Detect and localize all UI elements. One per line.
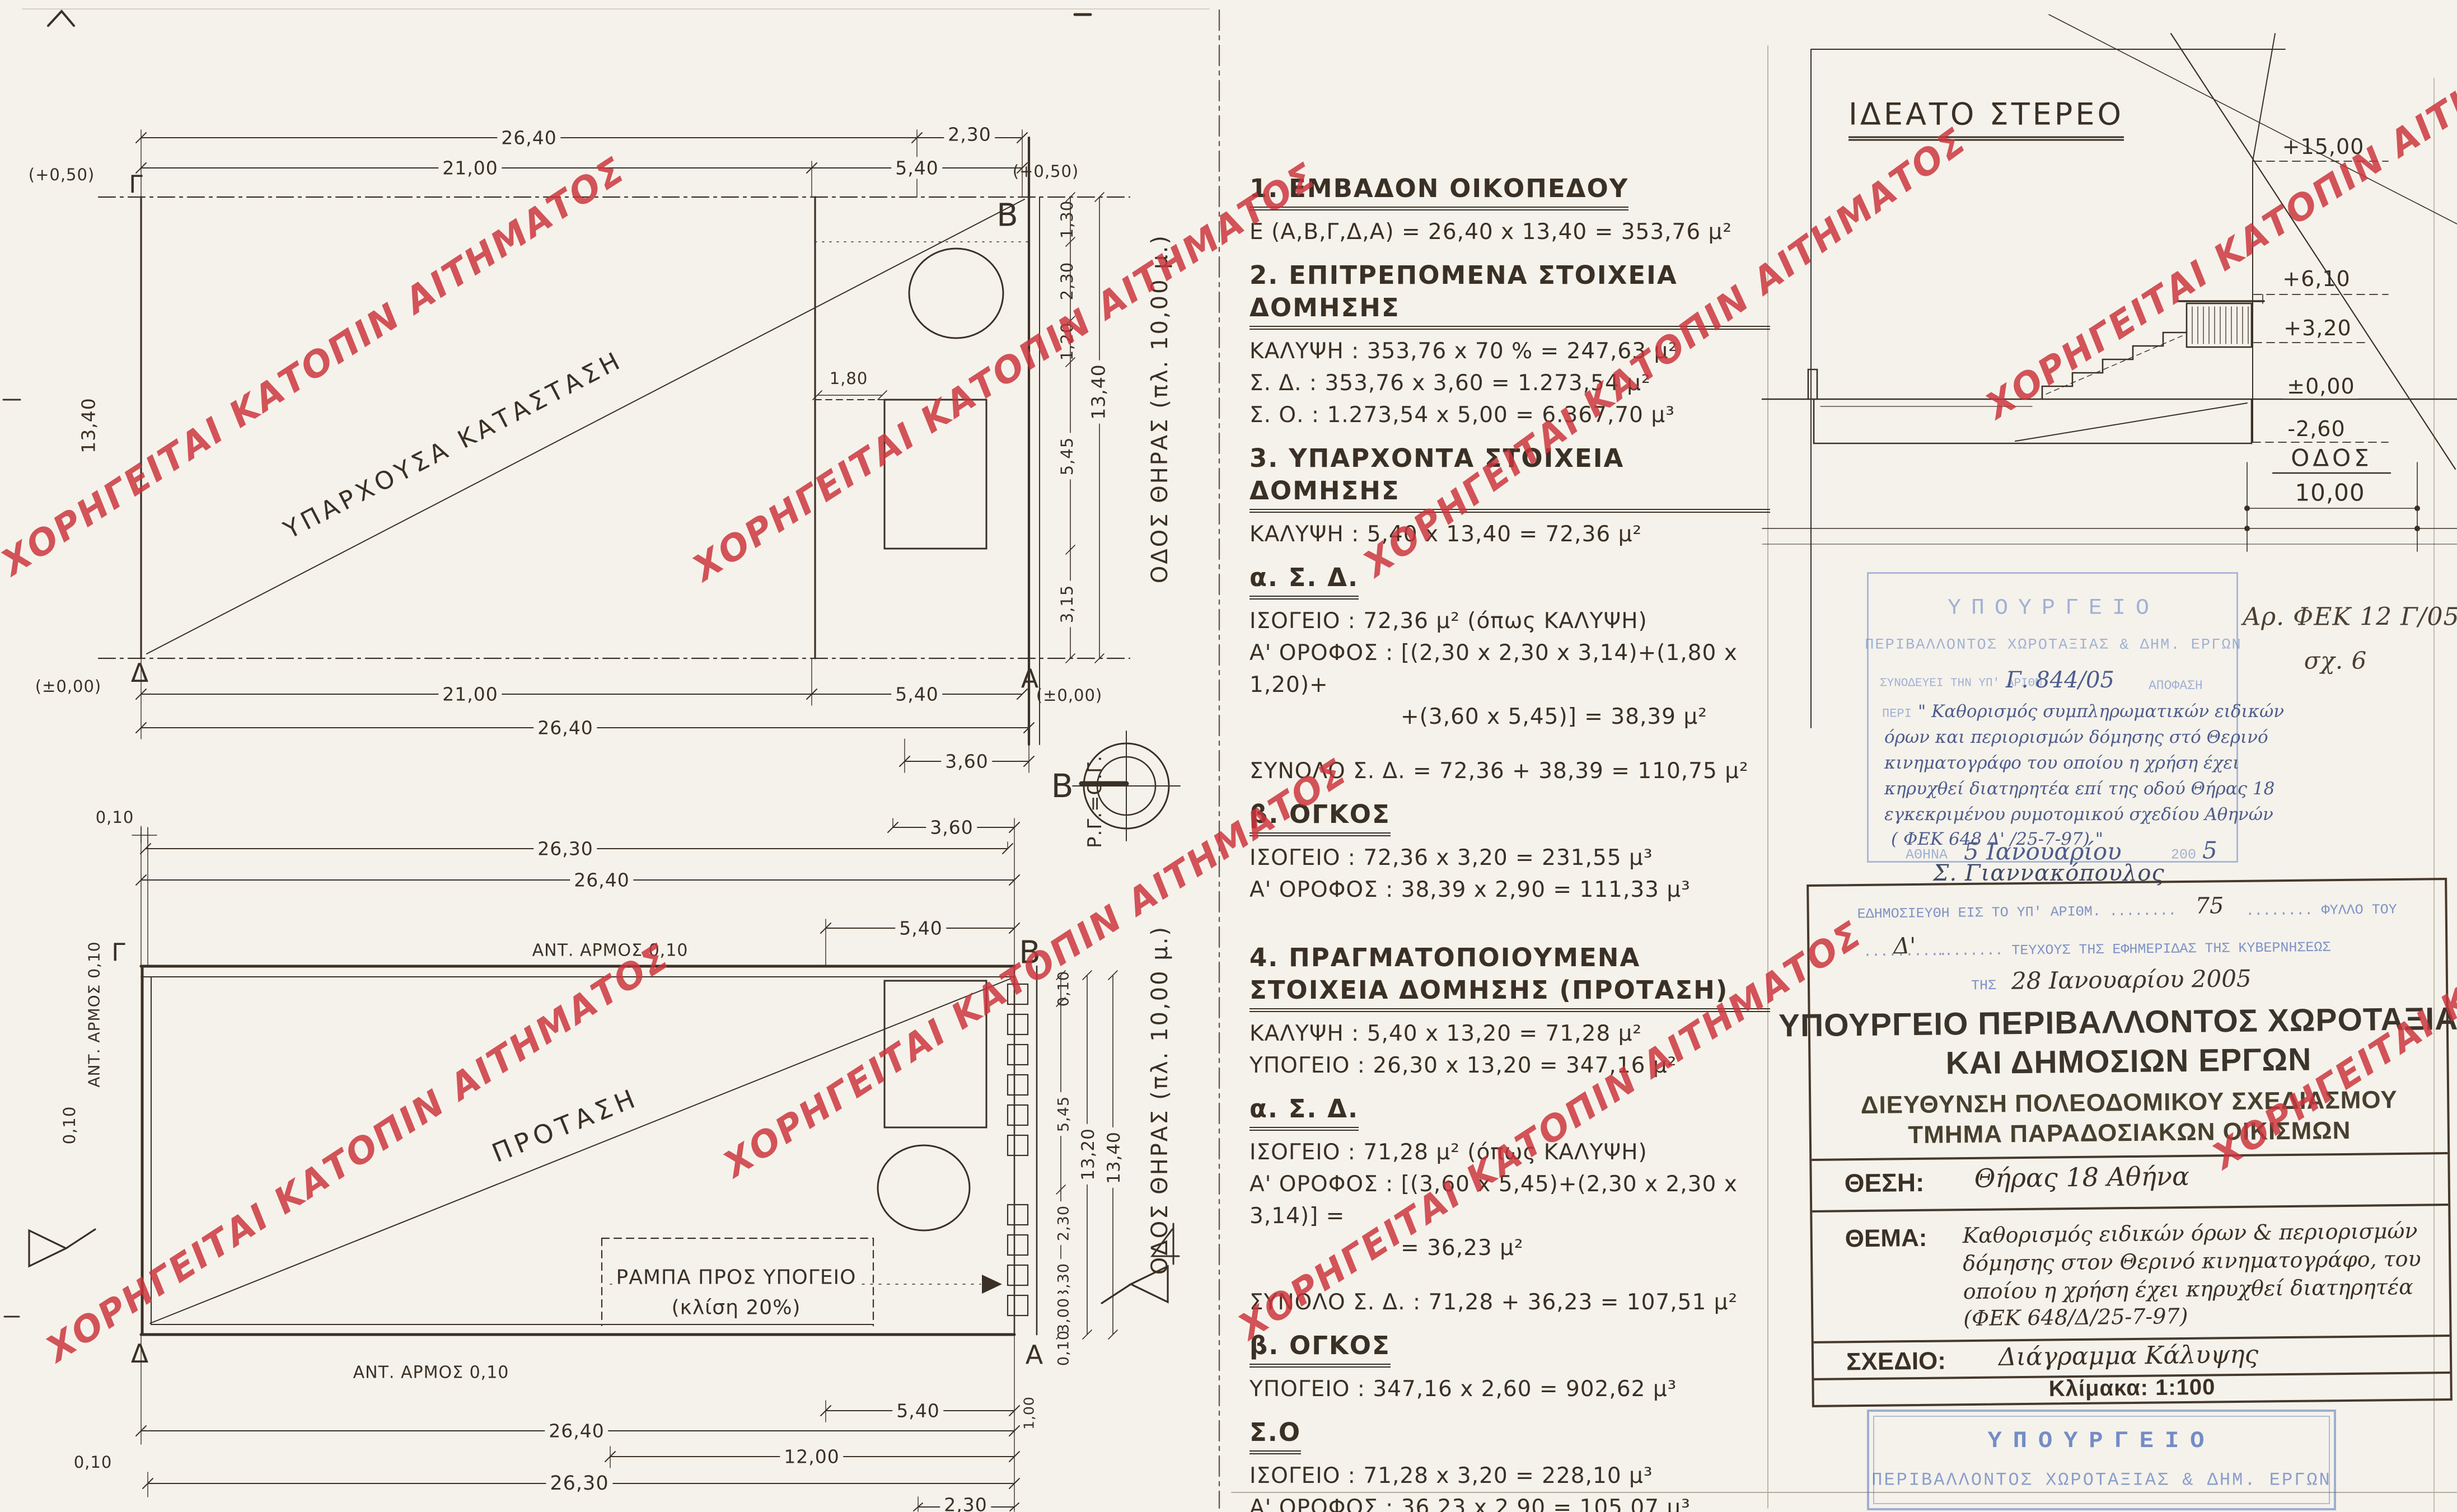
calc-line: ΙΣΟΓΕΙΟ : 72,36 x 3,20 = 231,55 μ³	[1249, 842, 1770, 874]
calc-line: ΚΑΛΥΨΗ : 353,76 x 70 % = 247,63 μ²	[1249, 335, 1770, 367]
opening-square	[1008, 984, 1028, 1004]
dim-label: 3,15	[1057, 581, 1077, 628]
approval-stamp: ΥΠΟΥΡΓΕΙΟ ΠΕΡΙΒΑΛΛΟΝΤΟΣ ΧΩΡΟΤΑΞΙΑΣ & ΔΗΜ…	[1867, 572, 2238, 863]
proposal-diagonal	[150, 979, 1011, 1323]
dim-label: 5,40	[895, 918, 946, 939]
stamp-year-pre: 200	[2171, 847, 2196, 863]
stamp-header2: ΠΕΡΙΒΑΛΛΟΝΤΟΣ ΧΩΡΟΤΑΞΙΑΣ & ΔΗΜ. ΕΡΓΩΝ	[1865, 637, 2242, 654]
small-dim	[132, 827, 157, 843]
ref-copy: σχ. 6	[2304, 647, 2367, 675]
corner-label: Β	[1019, 935, 1041, 971]
booth	[2187, 303, 2252, 347]
calc-line: ΚΑΛΥΨΗ : 5,40 x 13,20 = 71,28 μ²	[1249, 1018, 1770, 1050]
ramp-slope-label: (κλίση 20%)	[668, 1296, 805, 1319]
calc-line: Σ. Δ. : 353,76 x 3,60 = 1.273,54 μ²	[1249, 367, 1770, 399]
pub-line1-post: ........ ΦΥΛΛΟ ΤΟΥ	[2246, 901, 2397, 919]
opening-square	[1008, 1295, 1028, 1316]
opening-square	[1008, 1014, 1028, 1034]
department: ΤΜΗΜΑ ΠΑΡΑΔΟΣΙΑΚΩΝ ΟΙΚΙΣΜΩΝ	[1908, 1117, 2351, 1149]
calc-section: 4. ΠΡΑΓΜΑΤΟΠΟΙΟΥΜΕΝΑ ΣΤΟΙΧΕΙΑ ΔΟΜΗΣΗΣ (Π…	[1249, 942, 1770, 1082]
calc-heading: β. ΟΓΚΟΣ	[1249, 798, 1391, 836]
dim-label: 0,10	[74, 1453, 113, 1472]
dim-label: 5,40	[892, 1400, 943, 1422]
opening-square	[1008, 1105, 1028, 1125]
calc-line: = 36,23 μ²	[1401, 1232, 1770, 1264]
thema-line: (ΦΕΚ 648/Δ/25-7-97)	[1963, 1304, 2188, 1331]
calc-line: Α' ΟΡΟΦΟΣ : [(3,60 x 5,45)+(2,30 x 2,30 …	[1249, 1168, 1770, 1232]
calc-line: Α' ΟΡΟΦΟΣ : [(2,30 x 2,30 x 3,14)+(1,80 …	[1249, 637, 1770, 701]
ideal-solid-title: ΙΔΕΑΤΟ ΣΤΕΡΕΟ	[1848, 97, 2124, 141]
corner-label: Β	[996, 198, 1018, 234]
calc-line: Α' ΟΡΟΦΟΣ : 36,23 x 2,90 = 105,07 μ³	[1249, 1492, 1770, 1512]
dim-label: 13,40	[1088, 360, 1110, 423]
dim-interior	[813, 391, 887, 400]
stamp-subject-line: εγκεκριμένου ρυμοτομικού σχεδίου Αθηνών	[1884, 804, 2273, 825]
dim-label: 5,40	[891, 684, 942, 705]
dim-label: 2,30	[1055, 1201, 1073, 1245]
thesi-label: ΘΕΣΗ:	[1844, 1167, 1924, 1198]
level-label: (±0,00)	[35, 677, 102, 696]
dim-label: 26,40	[545, 1420, 608, 1442]
dim-label: 5,45	[1057, 433, 1077, 480]
stamp-subject-line: κινηματογράφο του οποίου η χρήση έχει	[1884, 753, 2239, 773]
dim-label: 5,45	[1055, 1092, 1073, 1136]
calc-line: ΙΣΟΓΕΙΟ : 71,28 x 3,20 = 228,10 μ³	[1249, 1460, 1770, 1492]
joint-label-top: ΑΝΤ. ΑΡΜΟΣ 0,10	[528, 941, 692, 961]
level-label: (+0,50)	[29, 165, 95, 184]
basement-ramp	[2015, 403, 2247, 441]
pub-line3-pre: ΤΗΣ	[1971, 977, 1996, 994]
pub-line2: ........ ΤΕΥΧΟΥΣ ΤΗΣ ΕΦΗΜΕΡΙΔΑΣ ΤΗΣ ΚΥΒΕ…	[1936, 939, 2330, 959]
calc-heading: 2. ΕΠΙΤΡΕΠΟΜΕΝΑ ΣΤΟΙΧΕΙΑ ΔΟΜΗΣΗΣ	[1249, 259, 1770, 330]
dim-label: 3,60	[941, 751, 992, 773]
dim-label: 3,60	[926, 817, 977, 839]
extension-lines	[141, 658, 1029, 773]
corner-label: Δ	[131, 658, 149, 688]
calc-heading: 4. ΠΡΑΓΜΑΤΟΠΟΙΟΥΜΕΝΑ ΣΤΟΙΧΕΙΑ ΔΟΜΗΣΗΣ (Π…	[1249, 942, 1770, 1012]
stamp-subject-line: όρων και περιορισμών δόμησης στό Θερινό	[1884, 727, 2268, 747]
schedio-label: ΣΧΕΔΙΟ:	[1846, 1347, 1946, 1376]
calc-section: 1. ΕΜΒΑΔΟΝ ΟΙΚΟΠΕΔΟΥΕ (Α,Β,Γ,Δ,Α) = 26,4…	[1249, 172, 1770, 248]
plan-proposal-lines	[29, 818, 1179, 1511]
projection-circle	[878, 1145, 970, 1230]
stamp-subject-line: " Καθορισμός συμπληρωματικών ειδικών	[1918, 701, 2284, 722]
corner-label: Γ	[129, 171, 143, 199]
rule	[1812, 1152, 2447, 1161]
dim-label: 2,30	[1057, 262, 1077, 301]
opening-square	[1008, 1265, 1028, 1285]
dim-label: 1,20	[1057, 322, 1077, 361]
scale-label: Κλίμακα: 1:100	[2049, 1375, 2216, 1402]
calc-line: Α' ΟΡΟΦΟΣ : 38,39 x 2,90 = 111,33 μ³	[1249, 874, 1770, 906]
dim-label: 0,10	[96, 808, 134, 827]
stamp-year: 5	[2202, 837, 2217, 864]
dim-label: 2,30	[940, 1494, 991, 1512]
stamp-header: ΥΠΟΥΡΓΕΙΟ	[1948, 596, 2159, 621]
booth-hatch	[2192, 307, 2248, 344]
north-letter: Β	[1051, 767, 1074, 805]
level-label: ±0,00	[2283, 374, 2358, 399]
pub-line1-pre: ΕΔΗΜΟΣΙΕΥΘΗ ΕΙΣ ΤΟ ΥΠ' ΑΡΙΘΜ. ........	[1857, 903, 2177, 923]
dim-label: 13,40	[78, 394, 100, 457]
dim-label: 1,30	[1057, 200, 1077, 239]
basement	[1814, 399, 2252, 443]
calc-heading: α. Σ. Δ.	[1249, 1093, 1359, 1131]
ministry-title-line1: ΥΠΟΥΡΓΕΙΟ ΠΕΡΙΒΑΛΛΟΝΤΟΣ ΧΩΡΟΤΑΞΙΑΣ	[1779, 1000, 2457, 1044]
level-label: +6,10	[2282, 266, 2350, 291]
dim-label: 21,00	[438, 684, 502, 705]
calc-line: Ε (Α,Β,Γ,Δ,Α) = 26,40 x 13,40 = 353,76 μ…	[1249, 216, 1770, 248]
calc-line: ΥΠΟΓΕΙΟ : 347,16 x 2,60 = 902,62 μ³	[1249, 1373, 1770, 1405]
thema-line: Καθορισμός ειδικών όρων & περιορισμών	[1962, 1219, 2417, 1248]
extension-lines	[141, 130, 1022, 197]
calc-section: β. ΟΓΚΟΣΙΣΟΓΕΙΟ : 72,36 x 3,20 = 231,55 …	[1249, 798, 1770, 906]
dim-label: 5,40	[891, 157, 942, 179]
dim-label: 12,00	[780, 1446, 843, 1468]
ref-number: Αρ. ΦΕΚ 12 Γ/05	[2243, 603, 2457, 631]
ramp-label: ΡΑΜΠΑ ΠΡΟΣ ΥΠΟΓΕΙΟ	[612, 1266, 860, 1289]
calc-heading: β. ΟΓΚΟΣ	[1249, 1330, 1391, 1368]
calc-line: ΚΑΛΥΨΗ : 5,40 x 13,40 = 72,36 μ²	[1249, 518, 1770, 550]
calc-line: ΣΥΝΟΛΟ Σ. Δ. : 71,28 + 36,23 = 107,51 μ²	[1249, 1286, 1770, 1318]
calc-section: 3. ΥΠΑΡΧΟΝΤΑ ΣΤΟΙΧΕΙΑ ΔΟΜΗΣΗΣΚΑΛΥΨΗ : 5,…	[1249, 442, 1770, 550]
calc-column: 1. ΕΜΒΑΔΟΝ ΟΙΚΟΠΕΔΟΥΕ (Α,Β,Γ,Δ,Α) = 26,4…	[1249, 172, 1770, 1512]
rule	[1812, 1204, 2448, 1213]
calc-section: α. Σ. Δ.ΙΣΟΓΕΙΟ : 72,36 μ² (όπως ΚΑΛΥΨΗ)…	[1249, 561, 1770, 787]
dim-label: 26,40	[570, 869, 633, 891]
right-dim-total	[1095, 193, 1104, 663]
street-label: ΟΔΟΣ ΘΗΡΑΣ (πλ. 10,00 μ.)	[1147, 234, 1173, 583]
calc-line: +(3,60 x 5,45)] = 38,39 μ²	[1401, 701, 1770, 733]
pub-date: 28 Ιανουαρίου 2005	[2011, 965, 2252, 994]
corner-label: Δ	[131, 1338, 149, 1369]
calc-line: Σ. Ο. : 1.273,54 x 5,00 = 6.367,70 μ³	[1249, 399, 1770, 431]
plan-existing-lines	[99, 130, 1130, 773]
ministry-stamp-line2: ΠΕΡΙΒΑΛΛΟΝΤΟΣ ΧΩΡΟΤΑΞΙΑΣ & ΔΗΜ. ΕΡΓΩΝ	[1871, 1470, 2332, 1491]
edge-tick	[3, 400, 20, 1317]
joint-label-left: ΑΝΤ. ΑΡΜΟΣ 0,10	[85, 941, 104, 1087]
calc-section: β. ΟΓΚΟΣΥΠΟΓΕΙΟ : 347,16 x 2,60 = 902,62…	[1249, 1330, 1770, 1405]
opening-square	[1008, 1235, 1028, 1255]
corner-label: Α	[1026, 1340, 1043, 1370]
rg-og-label: Ρ.Γ.=Ο.Γ.	[1084, 755, 1106, 848]
projection-circle	[909, 249, 1003, 338]
dim-label: 26,30	[546, 1472, 612, 1495]
level-label: (±0,00)	[1036, 686, 1103, 705]
calc-heading: Σ.Ο	[1249, 1416, 1301, 1454]
dim-dot	[2244, 505, 2250, 511]
schedio-value: Διάγραμμα Κάλυψης	[1999, 1340, 2259, 1371]
dim-label: 0,10	[1055, 1330, 1073, 1366]
calc-heading: α. Σ. Δ.	[1249, 561, 1359, 600]
stamp-subject-line: κηρυχθεί διατηρητέα επί της οδού Θήρας 1…	[1884, 779, 2275, 799]
dim-label: 21,00	[438, 157, 502, 179]
opening-square	[1008, 1135, 1028, 1155]
thema-line: δόμησης στον Θερινό κινηματογράφο, του	[1963, 1247, 2421, 1276]
corner-label: Γ	[111, 939, 126, 967]
street-dim-verticals	[2247, 462, 2417, 551]
thema-line: οποίου η χρήση έχει κηρυχθεί διατηρητέα	[1963, 1275, 2413, 1304]
dim-label: 0,10	[60, 1106, 79, 1145]
ministry-stamp: ΥΠΟΥΡΓΕΙΟ ΠΕΡΙΒΑΛΛΟΝΤΟΣ ΧΩΡΟΤΑΞΙΑΣ & ΔΗΜ…	[1867, 1410, 2336, 1510]
thesi-value: Θήρας 18 Αθήνα	[1974, 1161, 2189, 1193]
dim-label: 2,30	[944, 124, 995, 146]
street-width-label: 10,00	[2295, 479, 2365, 507]
ramp-arrowhead	[982, 1275, 1002, 1294]
thema-label: ΘΕΜΑ:	[1845, 1224, 1927, 1253]
dim-dot	[2244, 526, 2250, 531]
dim-label: 13,40	[1104, 1127, 1124, 1188]
calc-line: ΥΠΟΓΕΙΟ : 26,30 x 13,20 = 347,16 μ²	[1249, 1050, 1770, 1082]
joint-label-bottom: ΑΝΤ. ΑΡΜΟΣ 0,10	[349, 1363, 513, 1383]
steps-dashed	[2046, 336, 2182, 394]
dim-label: 1,80	[826, 369, 872, 388]
dim-dot	[2414, 505, 2420, 511]
calc-section: Σ.ΟΙΣΟΓΕΙΟ : 71,28 x 3,20 = 228,10 μ³Α' …	[1249, 1416, 1770, 1512]
dim-dot	[2414, 526, 2420, 531]
dim-label: 26,30	[533, 838, 597, 860]
opening-square	[1008, 1045, 1028, 1065]
dim-label: 0,10	[1055, 971, 1073, 1007]
opening-square	[1008, 1075, 1028, 1095]
pub-number: 75	[2195, 893, 2224, 919]
dim-label: 26,40	[497, 127, 560, 149]
screen-room	[884, 400, 986, 549]
drawing-sheet: 2,30 26,40 21,00 5,40 (+0,50) Γ Β (+0,50…	[0, 0, 2457, 1512]
calc-section: 2. ΕΠΙΤΡΕΠΟΜΕΝΑ ΣΤΟΙΧΕΙΑ ΔΟΜΗΣΗΣΚΑΛΥΨΗ :…	[1249, 259, 1770, 431]
title-block: ΕΔΗΜΟΣΙΕΥΘΗ ΕΙΣ ΤΟ ΥΠ' ΑΡΙΘΜ. ........ 7…	[1807, 878, 2453, 1407]
section-mark	[29, 1229, 95, 1266]
lot-diagonal	[147, 199, 1024, 654]
ministry-stamp-line1: ΥΠΟΥΡΓΕΙΟ	[1988, 1427, 2216, 1454]
dim-label: 1,00	[1021, 1396, 1037, 1430]
level-label: +15,00	[2282, 134, 2365, 159]
opening-square	[1008, 1205, 1028, 1225]
apex-vertical	[2253, 34, 2275, 161]
calc-heading: 3. ΥΠΑΡΧΟΝΤΑ ΣΤΟΙΧΕΙΑ ΔΟΜΗΣΗΣ	[1249, 442, 1770, 513]
directorate: ΔΙΕΥΘΥΝΣΗ ΠΟΛΕΟΔΟΜΙΚΟΥ ΣΧΕΔΙΑΣΜΟΥ	[1861, 1086, 2398, 1120]
level-label: -2,60	[2287, 416, 2345, 441]
dim-label: 26,40	[533, 717, 597, 739]
calc-line: ΙΣΟΓΕΙΟ : 72,36 μ² (όπως ΚΑΛΥΨΗ)	[1249, 605, 1770, 637]
corner-mark	[48, 11, 74, 26]
screen-room	[884, 981, 986, 1127]
decision-number: Γ. 844/05	[2006, 667, 2114, 693]
dim-line	[136, 133, 1027, 143]
stamp-peri: ΠΕΡΙ	[1882, 707, 1912, 721]
level-label: (+0,50)	[1013, 162, 1079, 181]
pub-issue: Δ'	[1893, 933, 1916, 959]
calc-heading: 1. ΕΜΒΑΔΟΝ ΟΙΚΟΠΕΔΟΥ	[1249, 172, 1628, 210]
steps	[2042, 333, 2187, 399]
street-name-label: ΟΔΟΣ	[2291, 444, 2372, 472]
calc-section: α. Σ. Δ.ΙΣΟΓΕΙΟ : 71,28 μ² (όπως ΚΑΛΥΨΗ)…	[1249, 1093, 1770, 1318]
dim-label: 13,20	[1078, 1124, 1098, 1185]
street-label: ΟΔΟΣ ΘΗΡΑΣ (πλ. 10,00 μ.)	[1147, 925, 1173, 1275]
stamp-line-post: ΑΠΟΦΑΣΗ	[2149, 678, 2203, 693]
calc-line: ΣΥΝΟΛΟ Σ. Δ. = 72,36 + 38,39 = 110,75 μ²	[1249, 755, 1770, 787]
parapet	[1808, 369, 1817, 399]
level-label: +3,20	[2283, 316, 2351, 340]
ministry-title-line2: ΚΑΙ ΔΗΜΟΣΙΩΝ ΕΡΓΩΝ	[1945, 1041, 2311, 1082]
calc-line: ΙΣΟΓΕΙΟ : 71,28 μ² (όπως ΚΑΛΥΨΗ)	[1249, 1136, 1770, 1168]
